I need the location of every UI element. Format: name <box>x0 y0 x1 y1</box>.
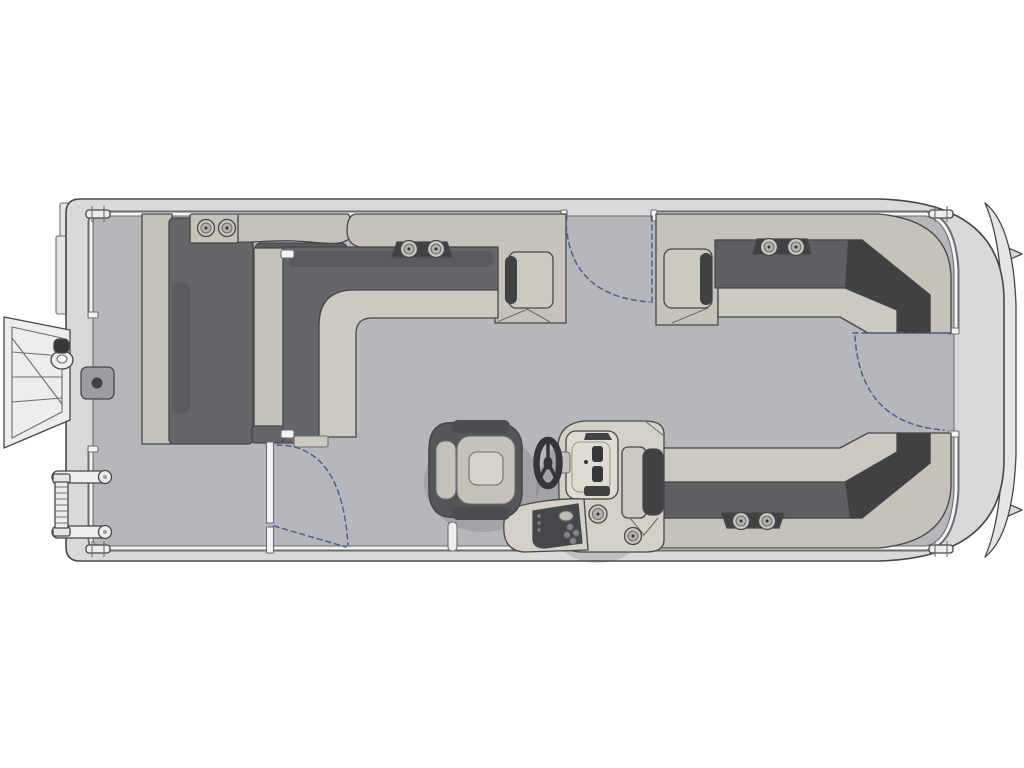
cupholder-icon <box>401 241 418 258</box>
hinge-tab <box>281 250 294 258</box>
switch-button-icon <box>564 532 570 538</box>
cupholder-icon <box>198 220 215 237</box>
partition-panel <box>267 442 274 523</box>
armrest-pocket <box>700 253 712 305</box>
cupholder-icon <box>219 220 236 237</box>
seat-end-cap <box>294 436 328 447</box>
starboard-aft-bench <box>616 433 951 548</box>
dash-vent-bottom <box>584 486 610 496</box>
deck-cupholder-icon <box>625 528 642 545</box>
toggle-dot-icon <box>537 528 540 531</box>
chair-armrest-bottom <box>452 507 510 520</box>
armrest-pocket <box>505 256 517 304</box>
toggle-dot-icon <box>537 521 540 524</box>
chaise-foot-wrap <box>252 426 284 443</box>
armrest-pocket <box>643 449 663 515</box>
corner-cap-swoosh <box>238 214 353 243</box>
starboard-bow-lounge <box>656 214 951 333</box>
rail-end-tab <box>88 446 98 452</box>
dash-vent-top <box>584 433 612 440</box>
switch-button-icon <box>567 524 573 530</box>
floor-plan-canvas <box>0 0 1024 768</box>
rail-end-tab <box>88 312 98 318</box>
switch-button-icon <box>570 538 576 544</box>
console-cupholder-icon <box>589 505 607 523</box>
gauge-icon <box>592 466 603 482</box>
ignition-icon <box>584 460 588 464</box>
swim-gate-open <box>4 317 70 448</box>
bench-back-shade <box>289 251 493 267</box>
gauge-icon <box>592 446 603 462</box>
switch-button-icon <box>573 530 579 536</box>
chair-armrest-top <box>452 420 510 433</box>
gate-latch-plate <box>81 367 114 399</box>
hinge-tab <box>281 430 294 438</box>
cupholder-icon <box>733 513 750 530</box>
cupholder-icon <box>428 241 445 258</box>
chair-seat-insert <box>469 452 503 485</box>
chaise-back-rail <box>142 214 172 444</box>
chaise-front-rail <box>254 248 284 428</box>
chaise-bolster <box>172 282 190 414</box>
cupholder-icon <box>759 513 776 530</box>
captains-chair <box>429 420 522 520</box>
partition-panel <box>267 527 274 553</box>
tow-pylon-post <box>448 522 457 551</box>
display-screen <box>559 511 573 521</box>
stern-port-corner-armrest <box>190 214 353 243</box>
cupholder-icon <box>788 239 805 256</box>
cupholder-icon <box>761 239 778 256</box>
toggle-dot-icon <box>537 514 540 517</box>
chair-backrest-pad <box>436 441 456 499</box>
pontoon-floor-plan <box>0 0 1024 768</box>
